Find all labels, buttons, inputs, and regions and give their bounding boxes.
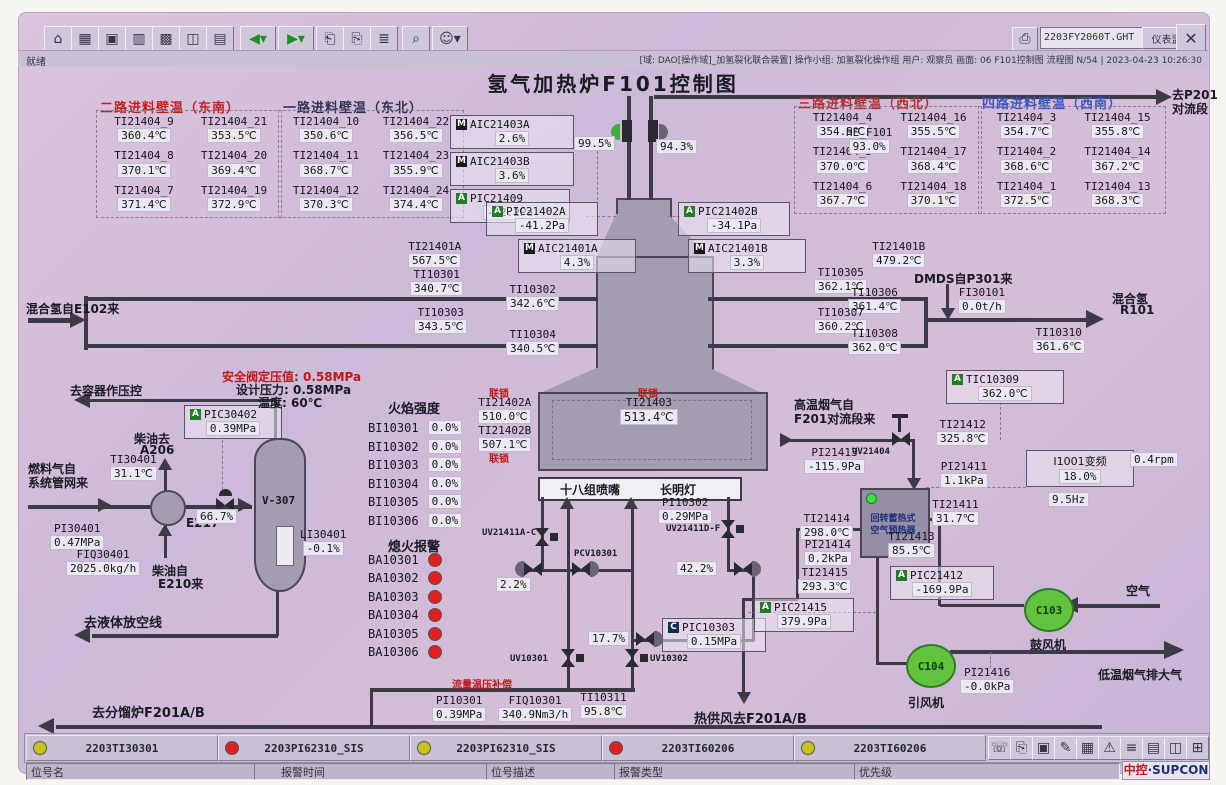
burner-nozzle-label: 十八组喷嘴 (560, 481, 620, 498)
value: 2.6% (495, 131, 530, 146)
alarm-tag: 2203PI62310_SIS (264, 742, 363, 755)
valve-burner-control[interactable] (524, 562, 542, 576)
pt-TI21401B: TI21401B479.2℃ (872, 240, 925, 268)
tray-phone-icon[interactable]: ☏ (988, 736, 1011, 760)
panel-feed2: TI21404_9360.4℃ TI21404_21353.5℃ TI21404… (96, 110, 282, 218)
tray-window-icon[interactable]: ◫ (1164, 736, 1187, 760)
tray-screen-icon[interactable]: ▣ (1032, 736, 1055, 760)
wall-cell: TI21404_12370.3℃ (281, 184, 371, 213)
pt-PI21416: PI21416-0.0kPa (960, 666, 1014, 694)
design-temp-label: 温度: 60℃ (258, 394, 322, 411)
exchanger-E217[interactable] (150, 490, 186, 526)
wall-cell: TI21404_18370.1℃ (888, 180, 979, 209)
page-title: 氢气加热炉F101控制图 (487, 68, 738, 97)
wall-cell: TI21404_15355.8℃ (1072, 111, 1163, 140)
search-glyph: ⌕ (412, 31, 420, 47)
value: -169.9Pa (912, 582, 973, 597)
air-label: 空气 (1126, 582, 1150, 599)
valve-UV10302[interactable] (625, 649, 639, 667)
tag: AIC21401A (538, 242, 598, 255)
alarm-cell-5[interactable]: 2203TI60206 (794, 735, 986, 761)
pt-TI30401: TI3040131.1℃ (110, 453, 157, 481)
supcon-logo: 中控·SUPCON (1122, 761, 1210, 780)
instrument-PIC21402A[interactable]: APIC21402A-41.2Pa (486, 202, 598, 236)
valve-UV10301[interactable] (561, 649, 575, 667)
tag: AIC21403B (470, 155, 530, 168)
instrument-I1001-vfd[interactable]: I1001变频18.0% (1026, 450, 1134, 487)
value: 3.3% (730, 255, 765, 270)
valve-PCV10301[interactable] (572, 562, 590, 576)
wall-cell: TI21404_2368.6℃ (981, 145, 1072, 174)
trend-icon[interactable]: ◫ (179, 26, 207, 52)
graphic-file-input[interactable]: 2203FY2060T.GHT (1040, 27, 1148, 49)
flue-out-label: 低温烟气排大气 (1098, 666, 1182, 683)
trend-glyph: ◫ (186, 31, 199, 47)
valve-actuator-icon (515, 561, 524, 577)
page-prev-icon[interactable]: ⎗ (316, 26, 344, 52)
pt-PI30401: PI304010.47MPa (50, 522, 104, 550)
tray-edit-icon[interactable]: ✎ (1054, 736, 1077, 760)
flame-intensity-title: 火焰强度 (388, 398, 440, 417)
r101-label: R101 (1120, 303, 1154, 317)
instrument-AIC21403B[interactable]: MAIC21403B3.6% (450, 152, 574, 186)
pt-TI21403: TI21403513.4℃ (620, 396, 678, 425)
instrument-PIC21402B[interactable]: APIC21402B-34.1Pa (678, 202, 790, 236)
wall-cell: TI21404_16355.5℃ (888, 111, 979, 140)
status-right: [域: DAO[操作域]_加氢裂化联合装置] 操作小组: 加氢裂化操作组 用户:… (639, 53, 1202, 66)
field-tagname: 位号名 (26, 763, 260, 780)
pt-TI21412: TI21412325.8℃ (936, 418, 989, 446)
tag: PIC21415 (774, 601, 827, 614)
burner-valve-position: 2.2% (496, 577, 531, 592)
wall-cell: TI21404_8370.1℃ (99, 149, 189, 178)
mode-badge: M (524, 243, 535, 254)
bi-row: BI103010.0% (368, 420, 462, 435)
blower-label: 鼓风机 (1030, 636, 1066, 653)
tray-doc-icon[interactable]: ▤ (1142, 736, 1165, 760)
uv10301-label: UV10301 (510, 654, 548, 664)
pt-TI21414: TI21414298.0℃ (800, 512, 853, 540)
report-glyph: ▤ (213, 31, 226, 47)
valve-UV21404[interactable] (892, 432, 910, 446)
ba-row: BA10302 (368, 571, 442, 585)
dcs-screen: ⌂ ▦ ▣ ▥ ▩ ◫ ▤ ◀▾ ▶▾ ⎗ ⎘ ≣ ⌕ ☺▾ ⎙ 2203FY2… (0, 0, 1226, 785)
to-fractionator-label: 去分馏炉F201A/B (92, 702, 205, 721)
instrument-AIC21401A[interactable]: MAIC21401A4.3% (518, 239, 636, 273)
value: -34.1Pa (707, 218, 761, 233)
wall-cell: TI21404_17368.4℃ (888, 145, 979, 174)
home-icon[interactable]: ⌂ (44, 26, 72, 52)
alarm-cell-1[interactable]: 2203TI30301 (26, 735, 218, 761)
pt-FIQ10301: FIQ10301340.9Nm3/h (498, 694, 572, 722)
pt-TI21401A: TI21401A567.5℃ (408, 240, 461, 268)
user-glyph: ☺ (439, 31, 454, 47)
pt-TI10310: TI10310361.6℃ (1032, 326, 1085, 354)
mode-badge: A (492, 206, 503, 217)
wall-cell: TI21404_1372.5℃ (981, 180, 1072, 209)
blower-C103[interactable]: C103 (1024, 588, 1074, 632)
wall-cell: TI21404_3354.7℃ (981, 111, 1072, 140)
vfd-rpm: 0.4rpm (1130, 452, 1178, 467)
grid-icon[interactable]: ▩ (152, 26, 180, 52)
value: 362.0℃ (978, 386, 1031, 401)
ba-row: BA10305 (368, 627, 442, 641)
panel-feed1: TI21404_10350.6℃ TI21404_22356.5℃ TI2140… (278, 110, 464, 218)
pt-TI10311: TI1031195.8℃ (580, 691, 627, 719)
value: -41.2Pa (515, 218, 569, 233)
bi-row: BI103030.0% (368, 457, 462, 472)
mode-badge: M (456, 119, 467, 130)
vfd-percent: 18.0% (1059, 469, 1100, 484)
pt-TI10304: TI10304340.5℃ (506, 328, 559, 356)
close-icon[interactable]: ✕ (1176, 24, 1206, 52)
window-icon[interactable]: ▣ (98, 26, 126, 52)
valve-actuator-icon (736, 525, 744, 533)
alarm-tag: 2203TI60206 (662, 742, 735, 755)
wall-cell: TI21404_9360.4℃ (99, 115, 189, 144)
wall-cell: TI21404_21353.5℃ (189, 115, 279, 144)
bi-row: BI103050.0% (368, 494, 462, 509)
tag: PIC21402A (506, 205, 566, 218)
flameout-indicator (428, 553, 442, 567)
valve-actuator-icon (576, 654, 584, 662)
damper-right-position: 94.3% (656, 139, 697, 154)
pt-TI21413: TI2141385.5℃ (888, 530, 935, 558)
alarm-cell-2[interactable]: 2203PI62310_SIS (218, 735, 410, 761)
tag: PIC21402B (698, 205, 758, 218)
field-alarmtime: 报警时间 (254, 763, 492, 780)
value: 0.39MPa (206, 421, 260, 436)
pt-TI10301: TI10301340.7℃ (410, 268, 463, 296)
id-fan-label: 引风机 (908, 694, 944, 711)
page-next-glyph: ⎘ (351, 31, 362, 47)
pt-TI21411: TI2141131.7℃ (932, 498, 979, 526)
page-next-icon[interactable]: ⎘ (343, 26, 371, 52)
value: 379.9Pa (777, 614, 831, 629)
level-gauge (276, 526, 294, 566)
search-icon[interactable]: ⌕ (402, 26, 430, 52)
pilot2-valve-position: 17.7% (588, 631, 629, 646)
book-glyph: ≣ (378, 31, 390, 47)
value: 4.3% (560, 255, 595, 270)
pilot-valve-position: 42.2% (676, 561, 717, 576)
alarm-dot (33, 741, 47, 755)
home-glyph: ⌂ (54, 31, 63, 47)
alarm-dot (801, 741, 815, 755)
field-description: 位号描述 (486, 763, 620, 780)
alarm-tag: 2203TI60206 (854, 742, 927, 755)
bi-row: BI103060.0% (368, 513, 462, 528)
tray-table-icon[interactable]: ▦ (1076, 736, 1099, 760)
back-glyph: ◀ (249, 31, 260, 47)
damper-left-position: 99.5% (574, 136, 615, 151)
id-fan-C104[interactable]: C104 (906, 644, 956, 688)
report-icon[interactable]: ▤ (206, 26, 234, 52)
e210-label: E210来 (158, 575, 203, 592)
panel-feed3: TI21404_4354.5℃ TI21404_16355.5℃ TI21404… (794, 106, 982, 214)
valve-dome-icon (219, 489, 232, 496)
back-icon[interactable]: ◀▾ (240, 26, 276, 52)
wall-cell: TI21404_22356.5℃ (371, 115, 461, 144)
flameout-indicator (428, 571, 442, 585)
vessel-V307[interactable] (254, 438, 306, 592)
instrument-PIC21412[interactable]: APIC21412-169.9Pa (890, 566, 994, 600)
to-p201-label2: 对流段 (1172, 100, 1208, 117)
flow-compensation-label: 流量温压补偿 (452, 676, 512, 691)
valve-pilot-control[interactable] (734, 562, 752, 576)
mode-badge: M (694, 243, 705, 254)
flue-in-label2: F201对流段来 (794, 410, 875, 427)
interlock-label: 联锁 (489, 450, 509, 465)
uv10302-label: UV10302 (650, 654, 688, 664)
instrument-PIC10303[interactable]: CPIC103030.15MPa (662, 618, 766, 652)
pt-PI10301: PI103010.39MPa (432, 694, 486, 722)
valve-cap-icon (892, 414, 908, 418)
alarm-dot (417, 741, 431, 755)
mode-badge: A (760, 602, 771, 613)
mode-badge: A (952, 374, 963, 385)
valve-UV21411A-C[interactable] (535, 528, 549, 546)
instrument-AIC21403A[interactable]: MAIC21403A2.6% (450, 115, 574, 149)
bi-row: BI103040.0% (368, 476, 462, 491)
mode-badge: M (456, 156, 467, 167)
wall-cell: TI21404_23355.9℃ (371, 149, 461, 178)
fuel-valve-position: 66.7% (196, 509, 237, 524)
grid-glyph: ▩ (159, 31, 172, 47)
ba-row: BA10306 (368, 645, 442, 659)
user-icon[interactable]: ☺▾ (432, 26, 468, 52)
mode-badge: C (668, 622, 679, 633)
tag: AIC21403A (470, 118, 530, 131)
pt-HE_F101: HE_F10193.0% (846, 126, 892, 154)
panel-feed4: TI21404_3354.7℃ TI21404_15355.8℃ TI21404… (978, 106, 1166, 214)
wall-cell: TI21404_14367.2℃ (1072, 145, 1163, 174)
v307-label: V-307 (262, 494, 295, 507)
alarm-tag: 2203PI62310_SIS (456, 742, 555, 755)
wall-cell: TI21404_11368.7℃ (281, 149, 371, 178)
chart-glyph: ▥ (132, 31, 145, 47)
uv21411df-label: UV21411D-F (666, 524, 720, 534)
mode-badge: A (896, 570, 907, 581)
hot-air-label: 热供风去F201A/B (694, 708, 807, 727)
to-vessel-label: 去容器作压控 (70, 382, 142, 399)
mode-badge: A (456, 193, 467, 204)
c104-label: C104 (918, 660, 945, 673)
ba-row: BA10304 (368, 608, 442, 622)
vent-label: 去液体放空线 (84, 612, 162, 631)
book-icon[interactable]: ≣ (370, 26, 398, 52)
instrument-TIC10309[interactable]: ATIC10309362.0℃ (946, 370, 1064, 404)
wall-cell: TI21404_10350.6℃ (281, 115, 371, 144)
vfd-hz: 9.5Hz (1048, 492, 1089, 507)
window-glyph: ▣ (105, 31, 118, 47)
furnace-convection (596, 256, 714, 374)
ba-row: BA10303 (368, 590, 442, 604)
field-priority: 优先级 (854, 763, 1120, 780)
valve-pilot2-control[interactable] (636, 632, 654, 646)
chart-icon[interactable]: ▥ (125, 26, 153, 52)
print-icon[interactable]: ⎙ (1012, 27, 1038, 51)
tray-page-icon[interactable]: ⎘ (1010, 736, 1033, 760)
valve-UV21411D-F[interactable] (721, 520, 735, 538)
instrument-AIC21401B[interactable]: MAIC21401B3.3% (688, 239, 806, 273)
pt-TI21415: TI21415293.3℃ (798, 566, 851, 594)
tag: PIC10303 (682, 621, 735, 634)
ba-row: BA10301 (368, 553, 442, 567)
pt-FI30101: FI301010.0t/h (958, 286, 1006, 314)
table-icon[interactable]: ▦ (71, 26, 99, 52)
instrument-PIC21415[interactable]: APIC21415379.9Pa (754, 598, 854, 632)
flameout-indicator (428, 590, 442, 604)
alarm-dot (225, 741, 239, 755)
bi-row: BI103020.0% (368, 439, 462, 454)
wall-cell: TI21404_19372.9℃ (189, 184, 279, 213)
mode-badge: A (190, 409, 201, 420)
tag: PIC21412 (910, 569, 963, 582)
wall-cell: TI21404_24374.4℃ (371, 184, 461, 213)
tag: PIC30402 (204, 408, 257, 421)
mix-h2-in-label: 混合氢自E102来 (26, 300, 119, 317)
pcv10301-label: PCV10301 (574, 549, 617, 559)
alarm-dot (609, 741, 623, 755)
valve-actuator-icon (640, 654, 648, 662)
wall-cell: TI21404_7371.4℃ (99, 184, 189, 213)
alarm-cell-3[interactable]: 2203PI62310_SIS (410, 735, 602, 761)
alarm-cell-4[interactable]: 2203TI60206 (602, 735, 794, 761)
wall-cell: TI21404_6367.7℃ (797, 180, 888, 209)
table-glyph: ▦ (78, 31, 91, 47)
field-alarmtype: 报警类型 (614, 763, 860, 780)
fuel-gas-label2: 系统管网来 (28, 474, 88, 491)
valve-actuator-icon (550, 533, 558, 541)
c103-label: C103 (1036, 604, 1063, 617)
status-bar: 就绪 [域: DAO[操作域]_加氢裂化联合装置] 操作小组: 加氢裂化操作组 … (18, 50, 1208, 67)
pt-PI21414: PI214140.2kPa (804, 538, 852, 566)
pt-LI30401: LI30401-0.1% (300, 528, 346, 556)
tray-alarm-icon[interactable]: ⚠ (1098, 736, 1121, 760)
flameout-indicator (428, 645, 442, 659)
wall-cell: TI21404_20369.4℃ (189, 149, 279, 178)
pt-PI21411: PI214111.1kPa (940, 460, 988, 488)
pt-PI21413: PI21413-115.9Pa (804, 446, 865, 474)
status-left: 就绪 (26, 53, 46, 68)
wall-cell: TI21404_13368.3℃ (1072, 180, 1163, 209)
tray-grid-icon[interactable]: ⊞ (1186, 736, 1209, 760)
value: 3.6% (495, 168, 530, 183)
damper-left[interactable] (622, 120, 632, 142)
tag: AIC21401B (708, 242, 768, 255)
forward-icon[interactable]: ▶▾ (278, 26, 314, 52)
flameout-indicator (428, 608, 442, 622)
page-prev-glyph: ⎗ (324, 31, 335, 47)
mode-badge: A (684, 206, 695, 217)
value: 0.15MPa (687, 634, 741, 649)
uv21411ac-label: UV21411A-C (482, 528, 536, 538)
pt-TI10308: TI10308362.0℃ (848, 327, 901, 355)
alarm-tag: 2203TI30301 (86, 742, 159, 755)
preheater-run-indicator (866, 493, 877, 504)
flameout-indicator (428, 627, 442, 641)
tray-list-icon[interactable]: ≡ (1120, 736, 1143, 760)
pt-TI10303: TI10303343.5℃ (414, 306, 467, 334)
pt-FIQ30401: FIQ304012025.0kg/h (66, 548, 140, 576)
pt-TI21402B: TI21402B507.1℃ (478, 424, 531, 452)
pt-TI10302: TI10302342.6℃ (506, 283, 559, 311)
dmds-label: DMDS自P301来 (914, 270, 1012, 287)
forward-glyph: ▶ (287, 31, 298, 47)
vfd-tag: I1001变频 (1032, 453, 1128, 469)
pt-PI10302: PI103020.29MPa (658, 496, 712, 524)
tag: TIC10309 (966, 373, 1019, 386)
pt-TI21402A: TI21402A510.0℃ (478, 396, 531, 424)
valve-stem-icon (898, 418, 901, 432)
